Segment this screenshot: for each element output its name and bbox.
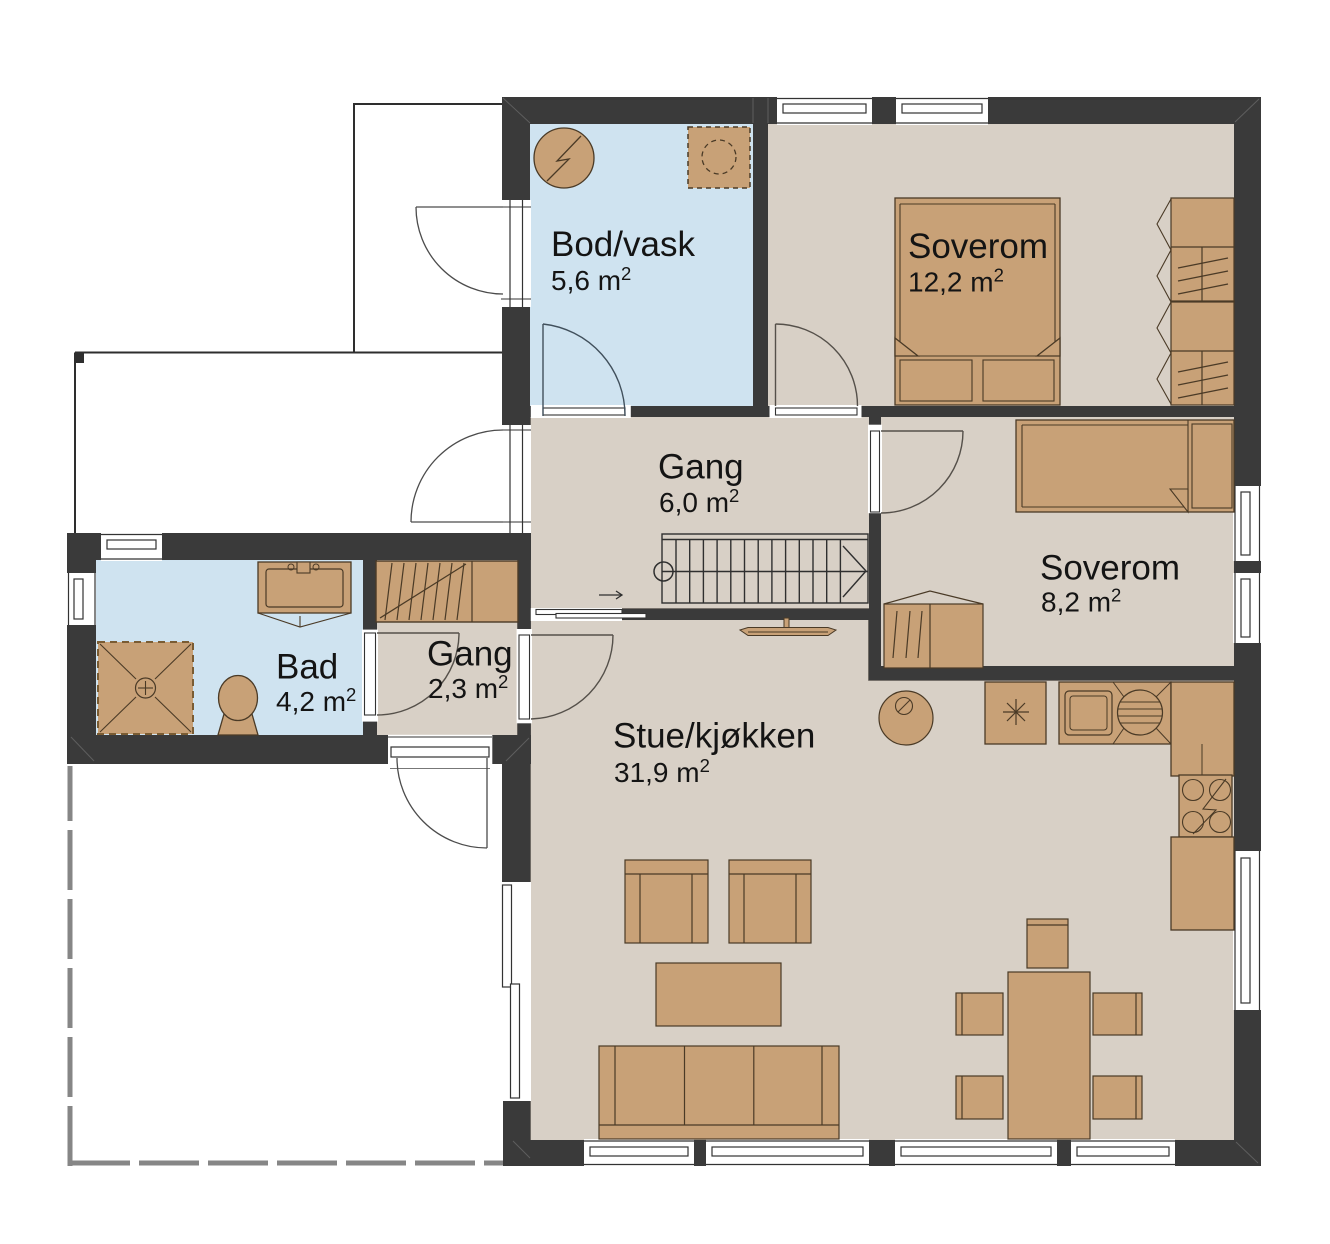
svg-text:Stue/kjøkken: Stue/kjøkken <box>613 716 815 755</box>
svg-text:4,2 m2: 4,2 m2 <box>276 684 356 717</box>
svg-text:12,2 m2: 12,2 m2 <box>908 265 1004 298</box>
svg-text:2,3 m2: 2,3 m2 <box>428 671 508 704</box>
svg-text:Soverom: Soverom <box>908 227 1048 266</box>
svg-text:Soverom: Soverom <box>1040 549 1180 588</box>
svg-text:Bod/vask: Bod/vask <box>551 225 695 264</box>
svg-text:Gang: Gang <box>427 635 513 674</box>
svg-text:5,6 m2: 5,6 m2 <box>551 263 631 296</box>
svg-text:Bad: Bad <box>276 647 338 686</box>
svg-text:31,9 m2: 31,9 m2 <box>614 755 710 788</box>
svg-text:8,2 m2: 8,2 m2 <box>1041 585 1121 618</box>
svg-text:Gang: Gang <box>658 448 744 487</box>
svg-text:6,0 m2: 6,0 m2 <box>659 485 739 518</box>
